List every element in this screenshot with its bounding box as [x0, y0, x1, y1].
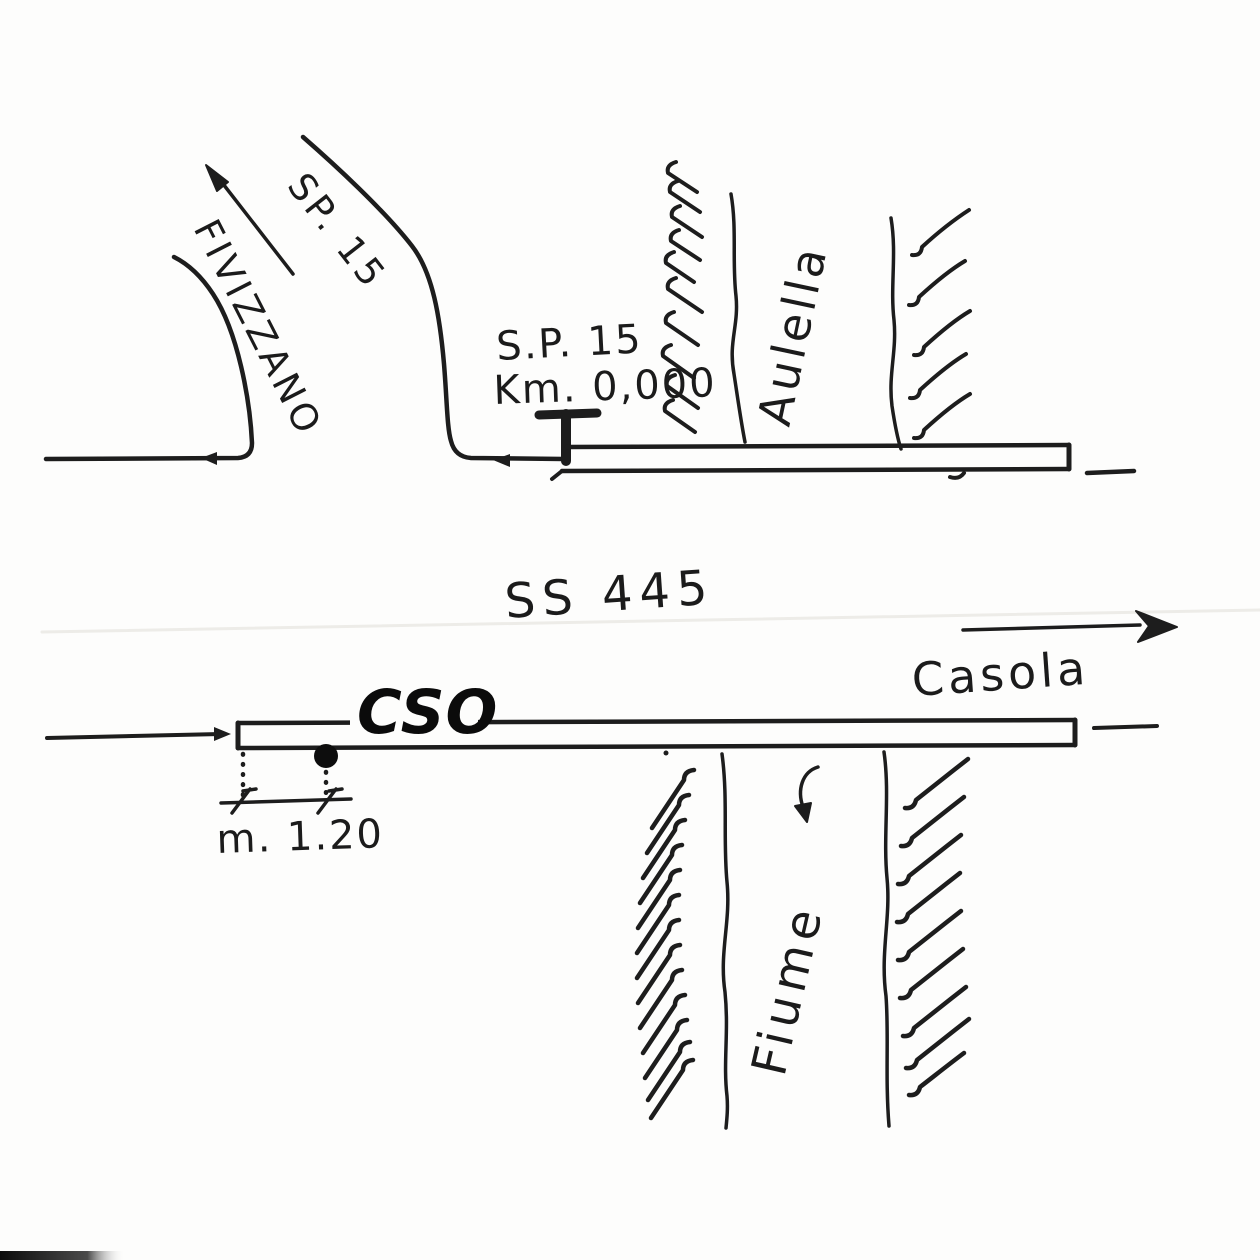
road-direction-marker-junction: [493, 454, 510, 467]
sketch-canvas: FIVIZZANO SP. 15 S.P. 15 Km. 0,000: [0, 0, 1260, 1260]
aulella-river: Aulella: [663, 162, 970, 478]
river-flow-arrow-head: [795, 803, 811, 822]
aulella-river-label: Aulella: [747, 240, 838, 431]
bridge-parapet-bottom: [562, 469, 1069, 471]
road-continuation-dash: [1087, 471, 1134, 473]
casola-direction-arrow-shaft: [963, 625, 1140, 630]
upper-junction: FIVIZZANO SP. 15: [46, 137, 564, 467]
sp15-branch-label: SP. 15: [279, 165, 396, 298]
road-direction-marker-left: [201, 452, 217, 465]
fiume-river-label: Fiume: [741, 898, 835, 1080]
bridge-parapet-top: [567, 445, 1069, 447]
fiume-right-bank: [884, 752, 889, 1126]
lower-continuation-dash: [1094, 726, 1157, 728]
aulella-right-bank: [891, 218, 901, 449]
aulella-right-bank-hatching: [909, 210, 970, 478]
km-zero-marker-group: S.P. 15 Km. 0,000: [493, 316, 718, 461]
aulella-left-bank: [731, 194, 745, 442]
sp15-marker-road-label: S.P. 15: [495, 316, 644, 370]
casola-direction-arrow-head: [1136, 611, 1177, 642]
lower-road-direction-marker: [214, 727, 231, 741]
bridge-left-tick: [552, 471, 562, 479]
fiume-river: Fiume: [637, 751, 969, 1129]
fivizzano-label: FIVIZZANO: [185, 213, 331, 444]
scan-edge-artifact: [0, 1251, 125, 1260]
fiume-left-bank: [722, 754, 728, 1128]
ss445-header: SS 445 Casola: [503, 559, 1177, 707]
casola-label: Casola: [910, 641, 1091, 707]
upper-bridge-road: [552, 445, 1134, 479]
cso-position-dot: [314, 744, 338, 768]
dimension-annotation: m. 1.20: [216, 754, 385, 863]
fiume-left-bank-hatching: [637, 751, 694, 1119]
cso-label: CSO: [357, 677, 498, 748]
approach-road-line: [47, 734, 221, 738]
dimension-label: m. 1.20: [216, 811, 385, 863]
fiume-right-bank-hatching: [897, 759, 969, 1095]
river-flow-arrow-shaft: [801, 767, 818, 807]
